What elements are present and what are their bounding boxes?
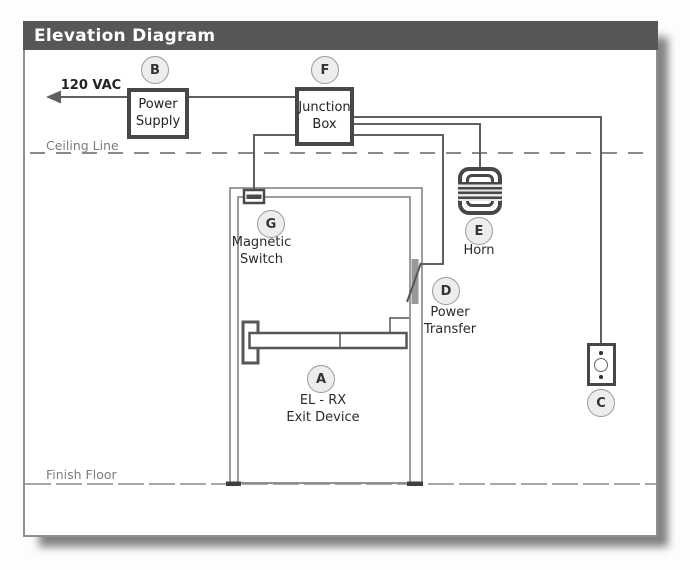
badge-d: D xyxy=(432,277,460,305)
badge-e-letter: E xyxy=(475,224,484,239)
switch-plate-c xyxy=(587,343,616,386)
wire-junction-to-horn xyxy=(352,124,480,169)
elevation-diagram-figure: Elevation Diagram 120 VAC Ceiling Line F… xyxy=(0,0,690,570)
power-transfer-label-line2: Transfer xyxy=(408,322,492,339)
junction-box-line2: Box xyxy=(312,117,336,134)
magnetic-switch-label: Magnetic Switch xyxy=(219,235,304,269)
badge-b-letter: B xyxy=(150,63,160,78)
page-title: Elevation Diagram xyxy=(23,26,215,46)
badge-g: G xyxy=(257,210,285,238)
wire-junction-to-magnetic-switch xyxy=(254,135,296,191)
title-bar: Elevation Diagram xyxy=(23,21,658,50)
badge-a: A xyxy=(307,365,335,393)
horn-label: Horn xyxy=(447,243,511,260)
power-supply-line2: Supply xyxy=(136,114,180,131)
door-frame-base-left xyxy=(226,482,241,487)
arrowhead-120vac xyxy=(46,91,61,104)
switch-plate-screw-top xyxy=(599,351,603,355)
power-transfer-label: Power Transfer xyxy=(408,305,492,339)
badge-g-letter: G xyxy=(266,217,277,232)
magnetic-switch-band xyxy=(247,195,262,200)
badge-f-letter: F xyxy=(321,63,330,78)
badge-b: B xyxy=(141,56,169,84)
badge-f: F xyxy=(311,56,339,84)
badge-c-letter: C xyxy=(596,396,606,411)
voltage-label: 120 VAC xyxy=(60,78,122,93)
door-frame-base-right xyxy=(407,482,423,487)
power-supply-box: Power Supply xyxy=(127,88,189,139)
finish-floor-label: Finish Floor xyxy=(46,467,117,482)
wire-exit-device-to-power-transfer xyxy=(390,318,409,333)
magnetic-switch-label-line2: Switch xyxy=(219,252,304,269)
horn-label-line1: Horn xyxy=(447,243,511,260)
power-supply-line1: Power xyxy=(138,97,177,114)
power-transfer-label-line1: Power xyxy=(408,305,492,322)
junction-box-line1: Junction xyxy=(298,100,350,117)
ceiling-line-label: Ceiling Line xyxy=(46,138,119,153)
switch-plate-button xyxy=(594,358,608,372)
switch-plate-screw-bottom xyxy=(599,375,603,379)
exit-device-label-line1: EL - RX xyxy=(271,393,375,410)
junction-box: Junction Box xyxy=(295,87,354,146)
magnetic-switch-label-line1: Magnetic xyxy=(219,235,304,252)
exit-device-label: EL - RX Exit Device xyxy=(271,393,375,427)
horn-grille xyxy=(458,182,502,201)
badge-c: C xyxy=(587,389,615,417)
exit-device-bar xyxy=(250,333,407,348)
badge-e: E xyxy=(465,217,493,245)
exit-device-label-line2: Exit Device xyxy=(271,410,375,427)
badge-d-letter: D xyxy=(441,284,452,299)
wire-junction-to-power-transfer xyxy=(352,135,443,264)
badge-a-letter: A xyxy=(316,372,326,387)
